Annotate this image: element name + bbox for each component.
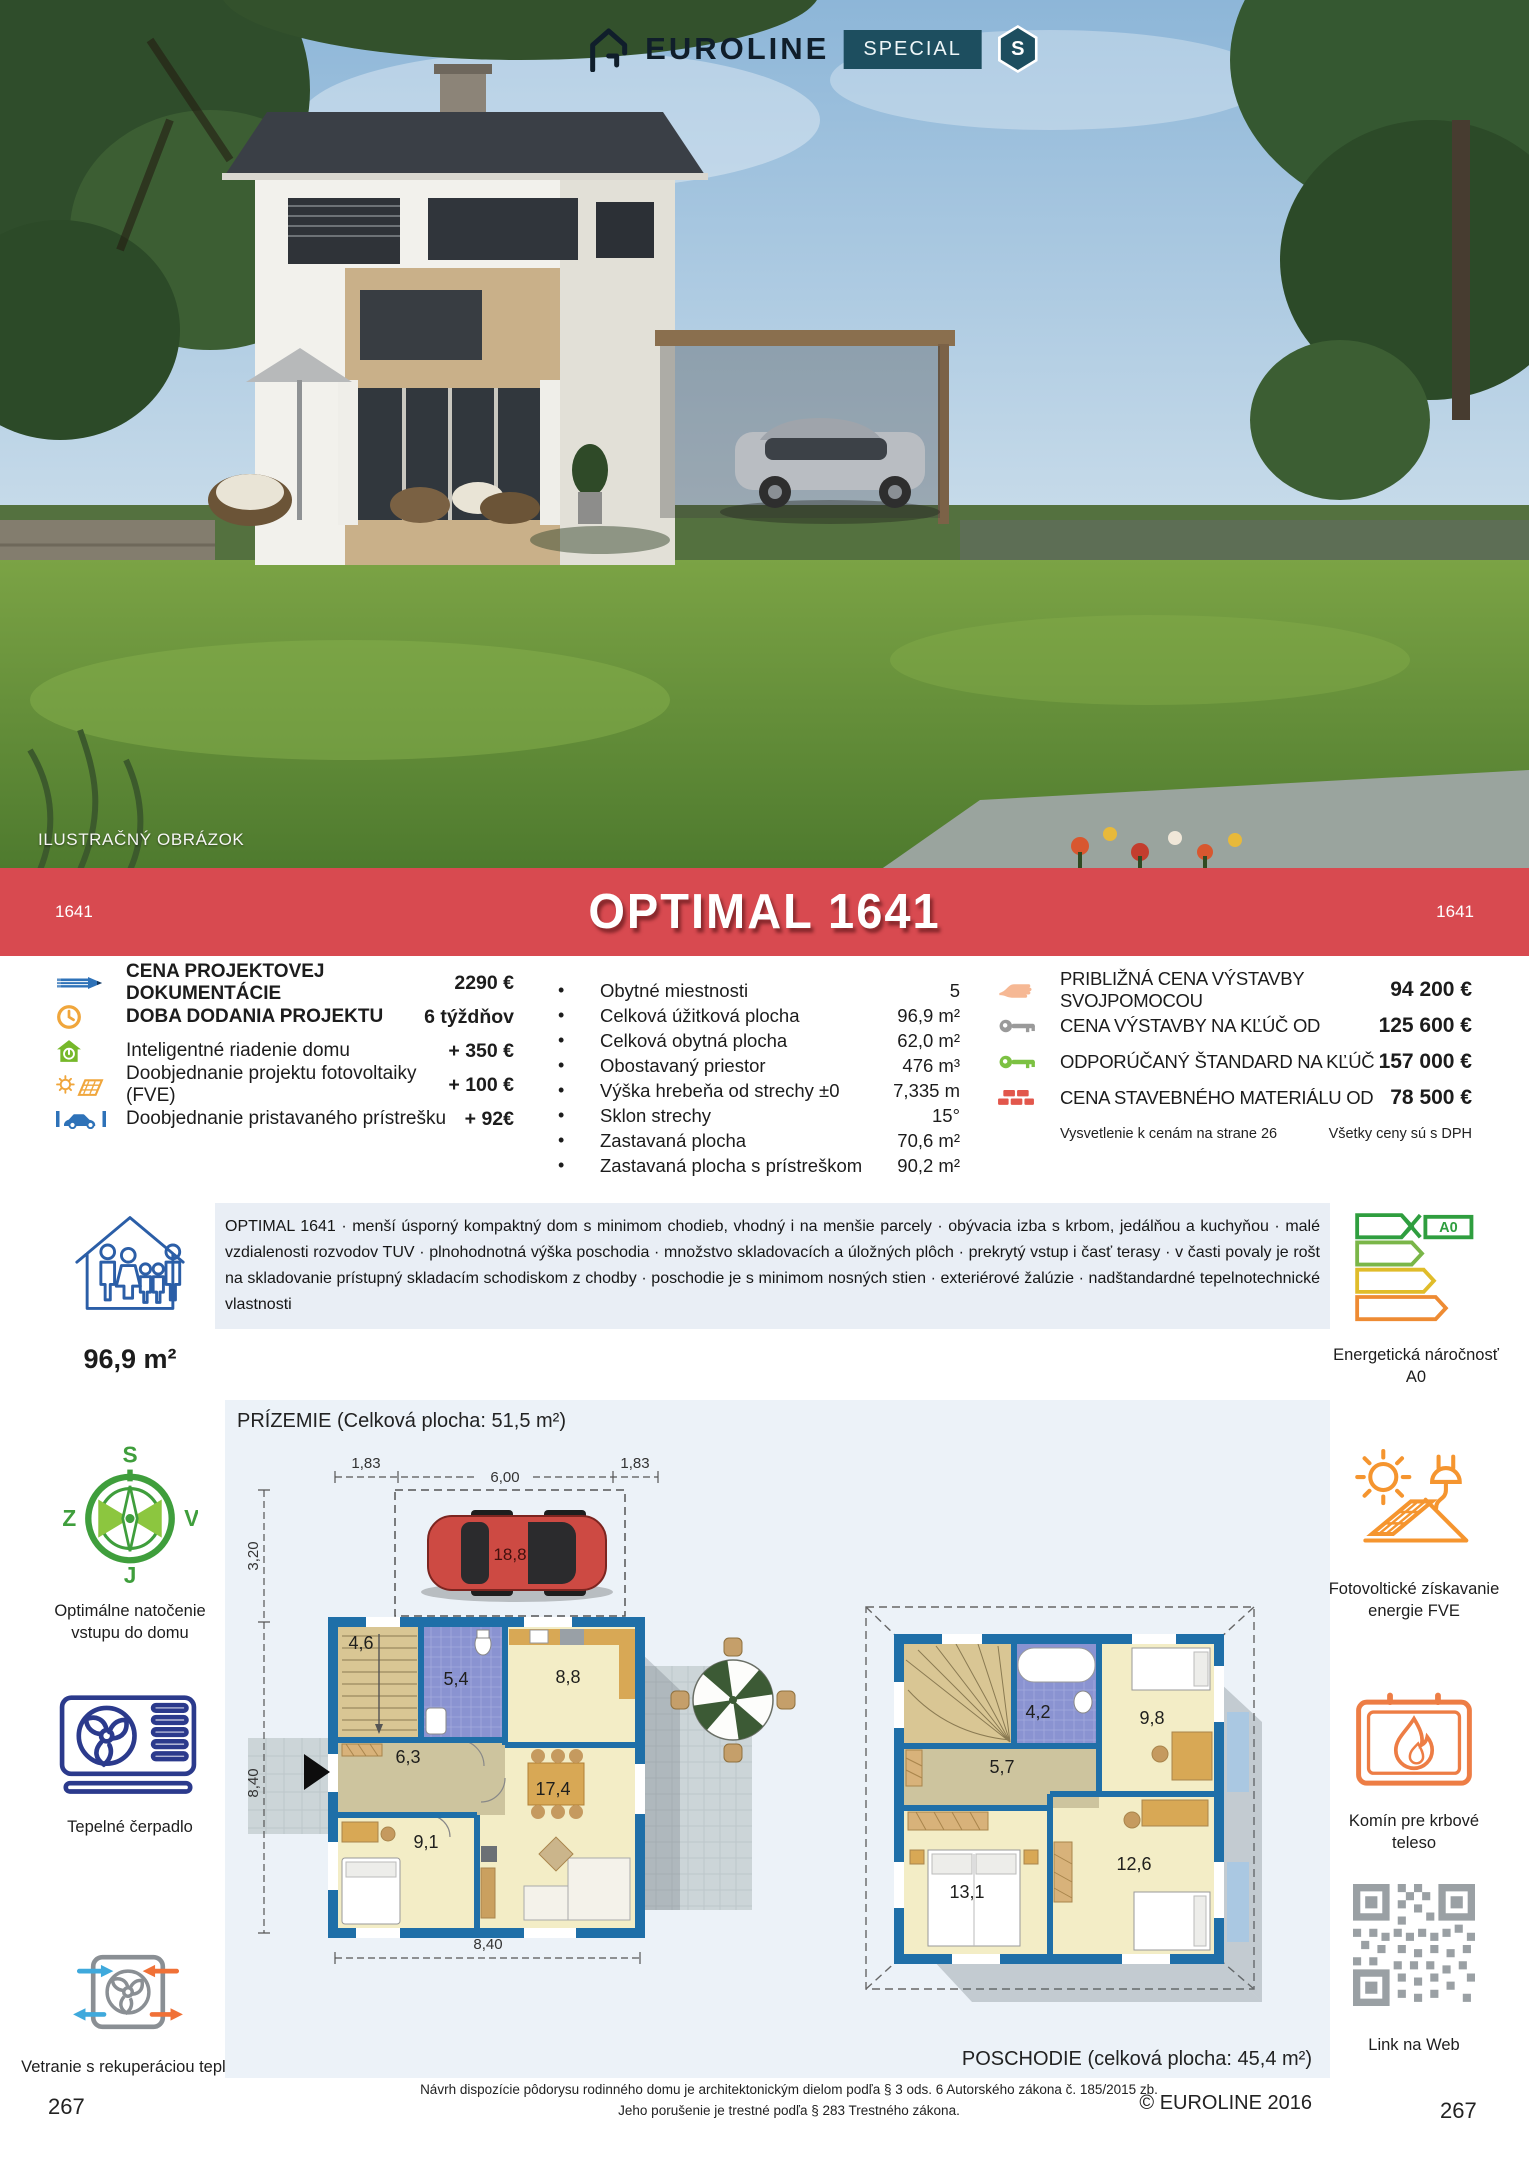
qr-caption: Link na Web bbox=[1334, 2034, 1494, 2056]
page-number-left: 267 bbox=[48, 2094, 85, 2120]
svg-text:6,3: 6,3 bbox=[395, 1747, 420, 1767]
price-value: 125 600 € bbox=[1379, 1014, 1472, 1038]
price-row: Doobjednanie projektu fotovoltaiky (FVE)… bbox=[56, 1068, 514, 1102]
price-row: CENA PROJEKTOVEJ DOKUMENTÁCIE 2290 € bbox=[56, 966, 514, 1000]
bullet-icon: • bbox=[558, 1105, 572, 1126]
ground-floor-plan: 1,83 6,00 1,83 3,20 8,40 8,40 18,8 bbox=[228, 1438, 803, 2038]
carport-icon bbox=[56, 1109, 110, 1129]
price-value: + 350 € bbox=[448, 1040, 514, 1063]
bricks-icon bbox=[998, 1089, 1050, 1108]
price-row: CENA VÝSTAVBY NA KĽÚČ OD 125 600 € bbox=[998, 1008, 1472, 1044]
svg-text:3,20: 3,20 bbox=[245, 1541, 262, 1570]
svg-text:S: S bbox=[122, 1441, 137, 1467]
key-gray-icon bbox=[998, 1018, 1050, 1034]
price-label: CENA STAVEBNÉHO MATERIÁLU OD bbox=[1050, 1087, 1390, 1109]
price-label: CENA VÝSTAVBY NA KĽÚČ OD bbox=[1050, 1015, 1379, 1037]
pricing-right: PRIBLIŽNÁ CENA VÝSTAVBY SVOJPOMOCOU 94 2… bbox=[998, 972, 1472, 1142]
svg-text:18,8: 18,8 bbox=[493, 1545, 526, 1564]
hand-icon bbox=[998, 978, 1050, 1003]
brand-name: EUROLINE bbox=[645, 31, 829, 67]
price-label: DOBA DODANIA PROJEKTU bbox=[110, 1006, 424, 1028]
description-block: OPTIMAL 1641 · menší úsporný kompaktný d… bbox=[215, 1203, 1330, 1329]
brand-lockup: EUROLINE SPECIAL S bbox=[585, 26, 1040, 72]
silver-car bbox=[720, 418, 940, 524]
price-row: DOBA DODANIA PROJEKTU 6 týždňov bbox=[56, 1000, 514, 1034]
svg-text:4,6: 4,6 bbox=[348, 1633, 373, 1653]
pricing-left: CENA PROJEKTOVEJ DOKUMENTÁCIE 2290 € DOB… bbox=[56, 966, 514, 1136]
upper-floor-plan: 4,2 9,8 5,7 13,1 12,6 bbox=[842, 1562, 1318, 2038]
bullet-icon: • bbox=[558, 1055, 572, 1076]
price-value: + 100 € bbox=[448, 1074, 514, 1097]
svg-text:17,4: 17,4 bbox=[535, 1779, 570, 1799]
bullet-icon: • bbox=[558, 1155, 572, 1176]
energy-caption: Energetická náročnosť A0 bbox=[1326, 1344, 1506, 1389]
solar-project-icon bbox=[56, 1074, 110, 1097]
special-badge: SPECIAL bbox=[843, 30, 981, 69]
page-title: OPTIMAL 1641 bbox=[0, 882, 1529, 940]
spec-row: •Sklon strechy15° bbox=[558, 1103, 960, 1128]
svg-text:A0: A0 bbox=[1439, 1220, 1458, 1236]
svg-text:8,40: 8,40 bbox=[245, 1768, 262, 1797]
svg-text:V: V bbox=[184, 1505, 198, 1531]
house-photo: EUROLINE SPECIAL S ILUSTRAČNÝ OBRÁZOK bbox=[0, 0, 1529, 870]
euroline-house-icon bbox=[585, 26, 631, 72]
spec-row: •Výška hrebeňa od strechy ±07,335 m bbox=[558, 1078, 960, 1103]
svg-text:4,2: 4,2 bbox=[1025, 1702, 1050, 1722]
heat-pump-caption: Tepelné čerpadlo bbox=[30, 1816, 230, 1838]
qr-code-icon bbox=[1353, 1884, 1475, 2011]
price-row: PRIBLIŽNÁ CENA VÝSTAVBY SVOJPOMOCOU 94 2… bbox=[998, 972, 1472, 1008]
spec-row: •Celková obytná plocha62,0 m² bbox=[558, 1028, 960, 1053]
price-label: Doobjednanie pristavaného prístrešku bbox=[110, 1108, 465, 1130]
ventilation-icon bbox=[70, 1934, 186, 2055]
bullet-icon: • bbox=[558, 1005, 572, 1026]
fve-caption: Fotovoltické získavanie energie FVE bbox=[1319, 1578, 1509, 1623]
bullet-icon: • bbox=[558, 1030, 572, 1051]
car-top-view: 18,8 bbox=[421, 1510, 613, 1602]
svg-text:13,1: 13,1 bbox=[949, 1882, 984, 1902]
bullet-icon: • bbox=[558, 1080, 572, 1101]
svg-text:8,8: 8,8 bbox=[555, 1667, 580, 1687]
svg-text:12,6: 12,6 bbox=[1116, 1854, 1151, 1874]
price-row: ODPORÚČANÝ ŠTANDARD NA KĽÚČ 157 000 € bbox=[998, 1044, 1472, 1080]
house-photo-art bbox=[0, 0, 1529, 870]
heat-pump-icon bbox=[58, 1694, 198, 1803]
spec-row: •Celková úžitková plocha96,9 m² bbox=[558, 1003, 960, 1028]
price-value: 2290 € bbox=[454, 972, 514, 995]
price-row: Doobjednanie pristavaného prístrešku + 9… bbox=[56, 1102, 514, 1136]
energy-label-icon: A0 bbox=[1352, 1210, 1480, 1331]
copyright: © EUROLINE 2016 bbox=[1080, 2092, 1312, 2115]
svg-text:9,1: 9,1 bbox=[413, 1832, 438, 1852]
spec-row: •Zastavaná plocha70,6 m² bbox=[558, 1128, 960, 1153]
spec-row: •Zastavaná plocha s prístreškom90,2 m² bbox=[558, 1153, 960, 1178]
svg-text:5,4: 5,4 bbox=[443, 1669, 468, 1689]
smart-home-icon bbox=[56, 1039, 110, 1063]
price-label: Doobjednanie projektu fotovoltaiky (FVE) bbox=[110, 1063, 448, 1107]
svg-text:1,83: 1,83 bbox=[620, 1455, 649, 1472]
title-banner: 1641 OPTIMAL 1641 1641 bbox=[0, 868, 1529, 956]
ground-floor-title: PRÍZEMIE (Celková plocha: 51,5 m²) bbox=[237, 1410, 566, 1433]
total-area-value: 96,9 m² bbox=[40, 1344, 220, 1375]
note-vat: Všetky ceny sú s DPH bbox=[1329, 1126, 1472, 1142]
s-coin-icon: S bbox=[996, 25, 1040, 73]
house-family-icon bbox=[70, 1196, 190, 1335]
fireplace-caption: Komín pre krbové teleso bbox=[1330, 1810, 1498, 1855]
price-value: 94 200 € bbox=[1390, 978, 1472, 1002]
svg-text:9,8: 9,8 bbox=[1139, 1708, 1164, 1728]
pencil-icon bbox=[56, 975, 110, 991]
svg-text:1,83: 1,83 bbox=[351, 1455, 380, 1472]
description-text: OPTIMAL 1641 · menší úsporný kompaktný d… bbox=[225, 1214, 1320, 1318]
bullet-icon: • bbox=[558, 1130, 572, 1151]
compass-icon: S V J Z bbox=[62, 1438, 198, 1595]
price-label: CENA PROJEKTOVEJ DOKUMENTÁCIE bbox=[110, 961, 454, 1005]
price-value: 78 500 € bbox=[1390, 1086, 1472, 1110]
catalog-page: EUROLINE SPECIAL S ILUSTRAČNÝ OBRÁZOK 16… bbox=[0, 0, 1529, 2160]
photo-caption: ILUSTRAČNÝ OBRÁZOK bbox=[38, 830, 244, 850]
svg-text:6,00: 6,00 bbox=[490, 1469, 519, 1486]
ventilation-caption: Vetranie s rekuperáciou tepla bbox=[20, 2056, 236, 2078]
svg-text:J: J bbox=[124, 1562, 137, 1588]
upper-floor-title: POSCHODIE (celková plocha: 45,4 m²) bbox=[860, 2048, 1312, 2071]
spec-row: •Obostavaný priestor476 m³ bbox=[558, 1053, 960, 1078]
specs-list: •Obytné miestnosti5 •Celková úžitková pl… bbox=[558, 978, 960, 1178]
model-code-right: 1641 bbox=[1436, 902, 1474, 922]
key-green-icon bbox=[998, 1054, 1050, 1070]
svg-text:5,7: 5,7 bbox=[989, 1757, 1014, 1777]
bullet-icon: • bbox=[558, 980, 572, 1001]
page-number-right: 267 bbox=[1440, 2098, 1477, 2124]
price-label: Inteligentné riadenie domu bbox=[110, 1040, 448, 1062]
fireplace-icon bbox=[1352, 1692, 1476, 1795]
compass-caption: Optimálne natočenie vstupu do domu bbox=[30, 1600, 230, 1645]
price-row: CENA STAVEBNÉHO MATERIÁLU OD 78 500 € bbox=[998, 1080, 1472, 1116]
price-label: PRIBLIŽNÁ CENA VÝSTAVBY SVOJPOMOCOU bbox=[1050, 968, 1390, 1012]
spec-row: •Obytné miestnosti5 bbox=[558, 978, 960, 1003]
clock-icon bbox=[56, 1004, 110, 1030]
svg-text:8,40: 8,40 bbox=[473, 1936, 502, 1953]
note-explanation: Vysvetlenie k cenám na strane 26 bbox=[998, 1126, 1277, 1142]
price-value: + 92€ bbox=[465, 1108, 514, 1131]
fve-icon bbox=[1354, 1438, 1476, 1565]
price-value: 157 000 € bbox=[1379, 1050, 1472, 1074]
price-notes: Vysvetlenie k cenám na strane 26 Všetky … bbox=[998, 1126, 1472, 1142]
svg-text:Z: Z bbox=[62, 1505, 76, 1531]
price-value: 6 týždňov bbox=[424, 1006, 514, 1029]
price-label: ODPORÚČANÝ ŠTANDARD NA KĽÚČ bbox=[1050, 1051, 1379, 1073]
